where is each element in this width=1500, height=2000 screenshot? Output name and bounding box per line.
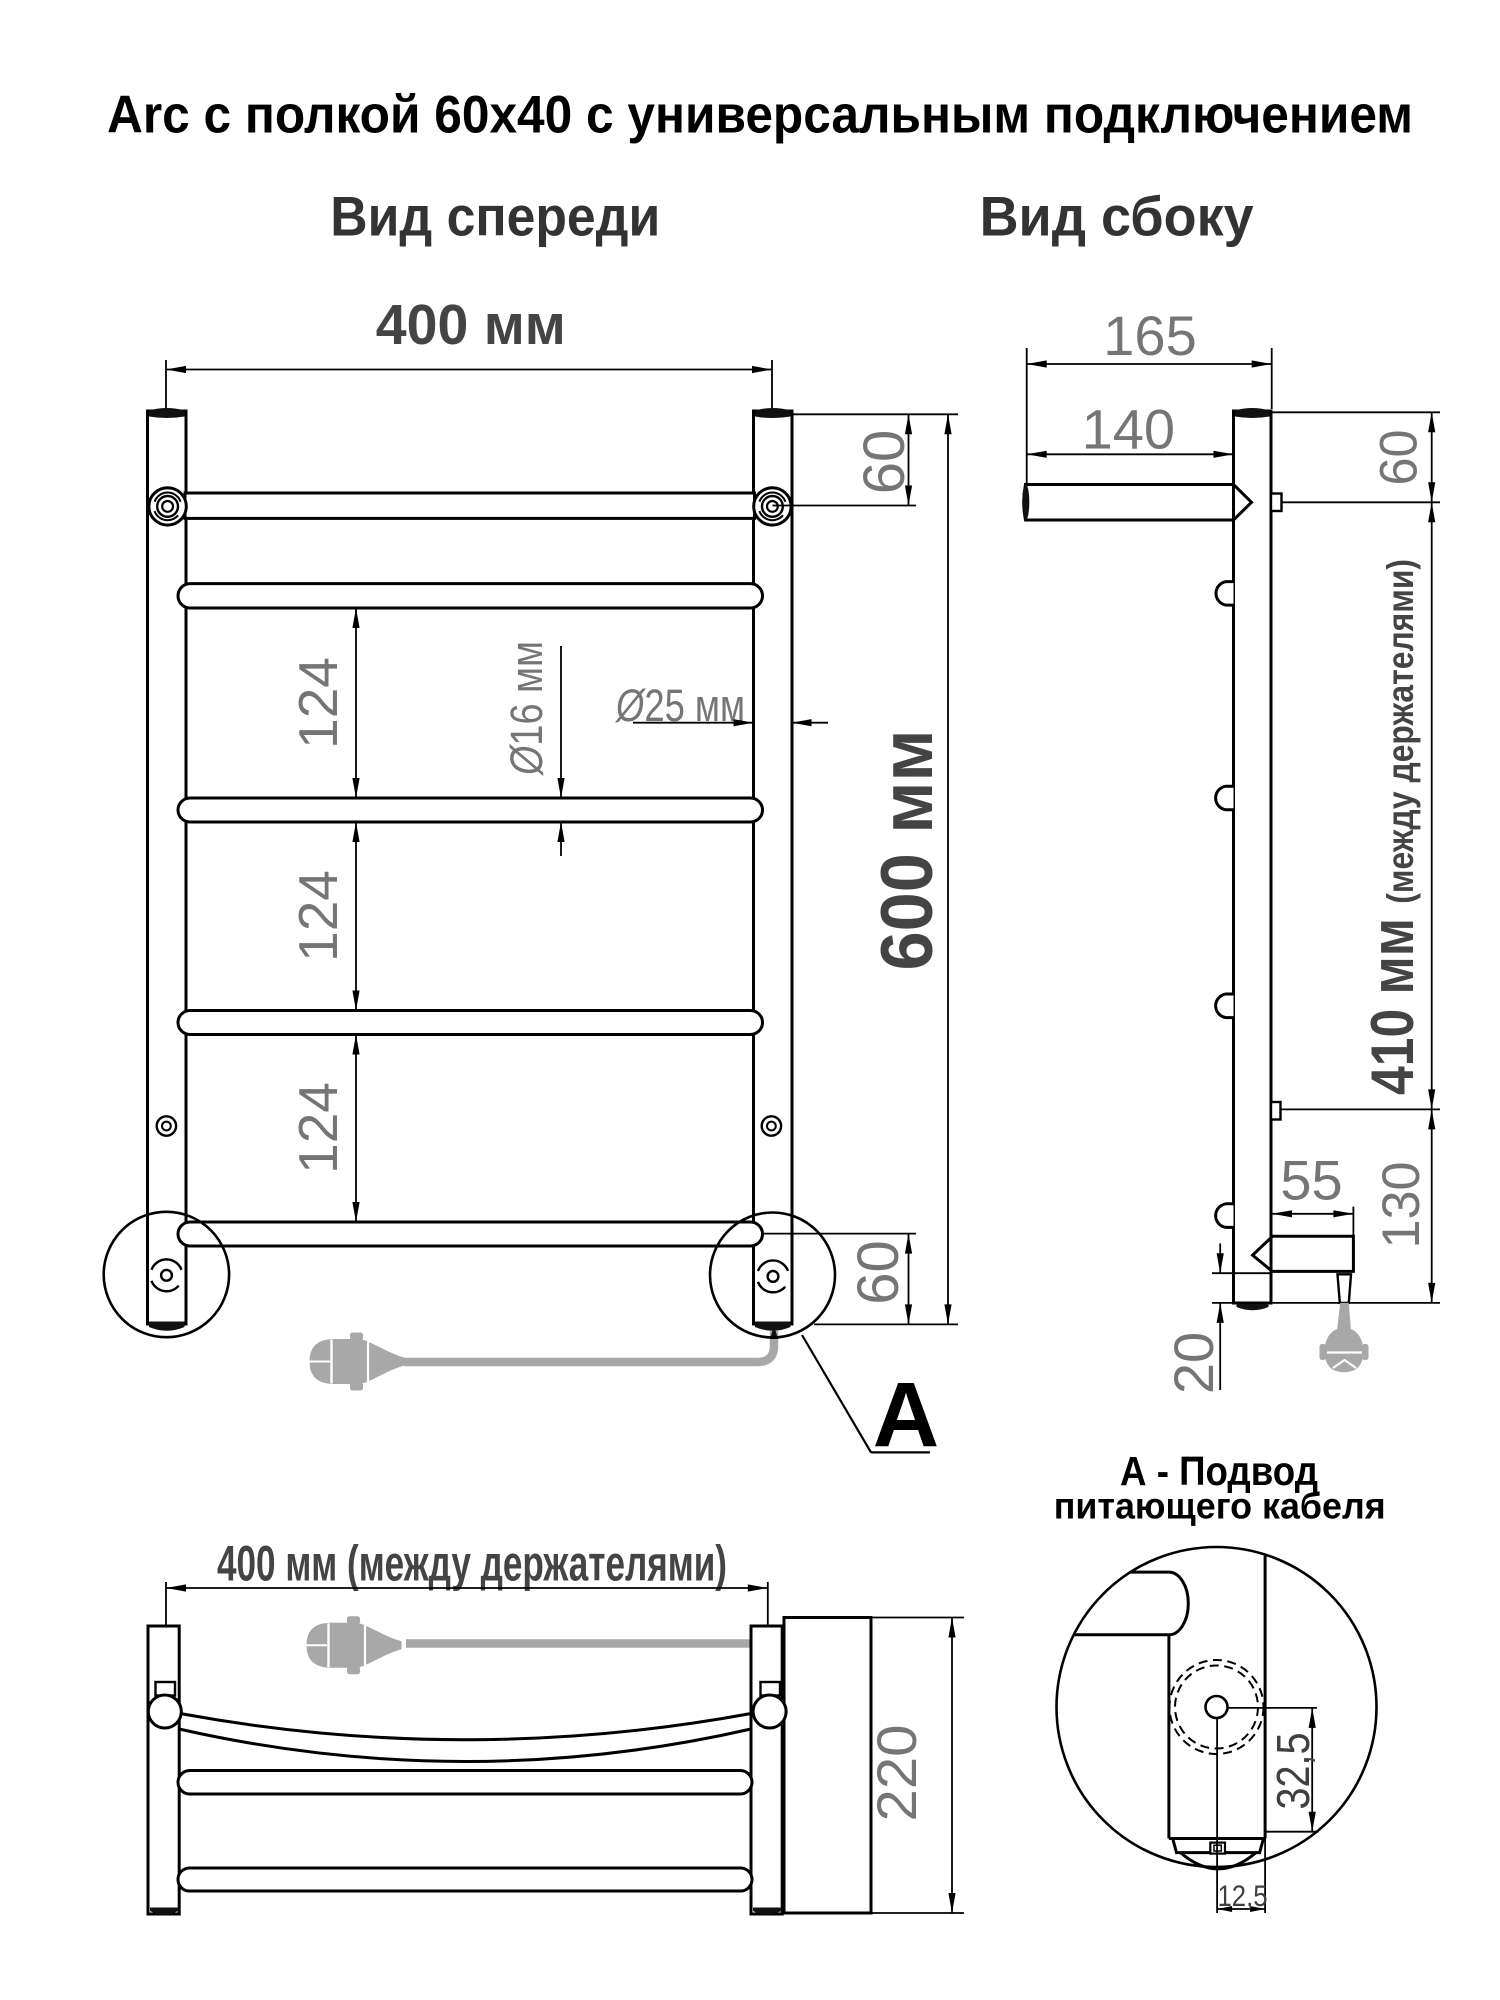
svg-text:400 мм (между держателями): 400 мм (между держателями)	[217, 1535, 727, 1591]
svg-text:400 мм: 400 мм	[376, 293, 566, 357]
svg-text:12,5: 12,5	[1218, 1880, 1268, 1913]
svg-text:130: 130	[1372, 1162, 1431, 1249]
svg-text:A: A	[873, 1364, 939, 1466]
svg-text:165: 165	[1103, 304, 1196, 367]
svg-text:60: 60	[852, 430, 917, 495]
svg-text:32,5: 32,5	[1267, 1733, 1319, 1810]
svg-text:220: 220	[865, 1725, 928, 1822]
svg-text:124: 124	[287, 870, 349, 962]
svg-text:600 мм: 600 мм	[867, 730, 948, 971]
svg-text:Ø16 мм: Ø16 мм	[501, 641, 552, 777]
svg-text:Вид спереди: Вид спереди	[330, 184, 660, 247]
svg-text:60: 60	[1370, 430, 1429, 486]
svg-text:Вид сбоку: Вид сбоку	[980, 184, 1254, 247]
svg-text:20: 20	[1162, 1332, 1225, 1394]
svg-text:питающего кабеля: питающего кабеля	[1054, 1485, 1386, 1527]
svg-text:60: 60	[846, 1240, 911, 1305]
svg-text:124: 124	[287, 1082, 349, 1174]
svg-text:124: 124	[287, 657, 349, 749]
svg-text:55: 55	[1280, 1148, 1342, 1211]
svg-text:140: 140	[1082, 397, 1175, 460]
svg-text:Arc с полкой 60x40 с универсал: Arc с полкой 60x40 с универсальным подкл…	[107, 86, 1413, 145]
